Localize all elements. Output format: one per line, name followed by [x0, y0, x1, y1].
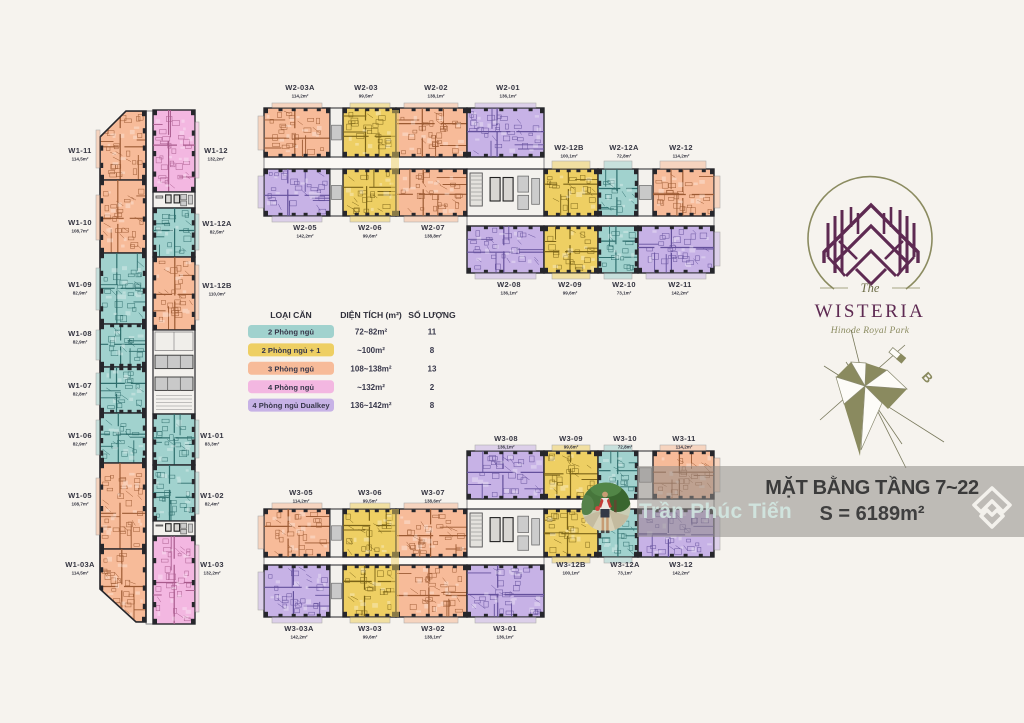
svg-text:138,1m²: 138,1m² — [427, 94, 445, 99]
svg-text:100,1m²: 100,1m² — [560, 154, 578, 159]
svg-text:142,2m²: 142,2m² — [672, 571, 690, 576]
svg-text:W2-12B: W2-12B — [554, 143, 584, 152]
svg-text:W1-11: W1-11 — [68, 146, 91, 155]
svg-text:LOẠI CĂN: LOẠI CĂN — [270, 310, 312, 320]
svg-text:114,2m²: 114,2m² — [293, 499, 310, 504]
svg-text:8: 8 — [430, 346, 435, 355]
svg-text:99,5m²: 99,5m² — [359, 94, 374, 99]
svg-text:82,8m²: 82,8m² — [73, 392, 88, 397]
svg-text:W2-03: W2-03 — [354, 83, 378, 92]
svg-text:73,1m²: 73,1m² — [617, 291, 632, 296]
svg-text:W1-12B: W1-12B — [202, 281, 232, 290]
svg-text:W1-10: W1-10 — [68, 218, 92, 227]
svg-text:W1-08: W1-08 — [68, 329, 92, 338]
svg-text:W3-12: W3-12 — [669, 560, 693, 569]
svg-text:W1-02: W1-02 — [200, 491, 224, 500]
svg-text:W3-09: W3-09 — [559, 434, 583, 443]
svg-text:99,6m²: 99,6m² — [363, 234, 378, 239]
svg-text:8: 8 — [430, 401, 435, 410]
svg-text:W3-08: W3-08 — [494, 434, 518, 443]
svg-text:W1-03A: W1-03A — [65, 560, 95, 569]
svg-text:110,0m²: 110,0m² — [209, 292, 226, 297]
svg-text:W2-03A: W2-03A — [285, 83, 315, 92]
svg-text:99,6m²: 99,6m² — [563, 291, 578, 296]
svg-text:W2-11: W2-11 — [668, 280, 691, 289]
svg-text:W1-03: W1-03 — [200, 560, 224, 569]
svg-text:W1-09: W1-09 — [68, 280, 92, 289]
svg-text:W1-12A: W1-12A — [202, 219, 232, 228]
svg-text:DIỆN TÍCH (m²): DIỆN TÍCH (m²) — [340, 309, 402, 320]
svg-text:108,7m²: 108,7m² — [71, 229, 89, 234]
svg-text:82,9m²: 82,9m² — [73, 291, 88, 296]
svg-text:W1-01: W1-01 — [200, 431, 224, 440]
svg-text:W2-12A: W2-12A — [609, 143, 639, 152]
svg-text:114,2m²: 114,2m² — [292, 94, 309, 99]
svg-text:82,9m²: 82,9m² — [73, 442, 88, 447]
svg-text:W3-06: W3-06 — [358, 488, 382, 497]
svg-text:MẶT BẰNG TẦNG 7~22: MẶT BẰNG TẦNG 7~22 — [765, 475, 979, 499]
svg-text:114,2m²: 114,2m² — [673, 154, 690, 159]
svg-text:3 Phòng ngủ: 3 Phòng ngủ — [268, 364, 314, 373]
svg-text:W3-07: W3-07 — [421, 488, 445, 497]
svg-text:W2-12: W2-12 — [669, 143, 693, 152]
svg-text:W2-01: W2-01 — [496, 83, 520, 92]
svg-text:W2-08: W2-08 — [497, 280, 521, 289]
svg-text:2 Phòng ngủ: 2 Phòng ngủ — [268, 328, 314, 337]
svg-text:WISTERIA: WISTERIA — [815, 301, 926, 322]
svg-text:W2-10: W2-10 — [612, 280, 636, 289]
svg-text:142,2m²: 142,2m² — [296, 234, 314, 239]
svg-text:W3-03: W3-03 — [358, 624, 382, 633]
svg-text:The: The — [861, 281, 880, 295]
svg-text:W3-01: W3-01 — [493, 624, 517, 633]
svg-text:138,6m²: 138,6m² — [424, 499, 442, 504]
svg-text:2: 2 — [430, 383, 435, 392]
svg-text:W3-02: W3-02 — [421, 624, 445, 633]
svg-text:82,9m²: 82,9m² — [73, 340, 88, 345]
svg-text:82,5m²: 82,5m² — [210, 230, 225, 235]
svg-text:72,8m²: 72,8m² — [617, 154, 632, 159]
svg-text:72~82m²: 72~82m² — [355, 328, 388, 337]
svg-text:W3-03A: W3-03A — [284, 624, 314, 633]
svg-text:136~142m²: 136~142m² — [350, 401, 391, 410]
svg-text:132,2m²: 132,2m² — [207, 157, 225, 162]
svg-text:114,5m²: 114,5m² — [72, 157, 89, 162]
svg-text:136,1m²: 136,1m² — [499, 94, 517, 99]
svg-text:W3-12B: W3-12B — [556, 560, 586, 569]
svg-text:W3-05: W3-05 — [289, 488, 313, 497]
svg-text:99,6m²: 99,6m² — [363, 635, 378, 640]
svg-text:W2-06: W2-06 — [358, 223, 382, 232]
svg-text:11: 11 — [428, 328, 437, 337]
svg-text:4 Phòng ngủ Dualkey: 4 Phòng ngủ Dualkey — [252, 401, 330, 410]
svg-text:108~138m²: 108~138m² — [350, 364, 391, 373]
svg-text:W1-07: W1-07 — [68, 381, 92, 390]
svg-text:2 Phòng ngủ + 1: 2 Phòng ngủ + 1 — [262, 346, 322, 355]
svg-text:138,1m²: 138,1m² — [424, 635, 442, 640]
svg-text:82,4m²: 82,4m² — [205, 502, 220, 507]
svg-text:W2-09: W2-09 — [558, 280, 582, 289]
svg-text:W3-10: W3-10 — [613, 434, 637, 443]
svg-text:138,8m²: 138,8m² — [424, 234, 442, 239]
svg-text:W1-05: W1-05 — [68, 491, 92, 500]
svg-text:99,5m²: 99,5m² — [363, 499, 378, 504]
svg-text:W3-11: W3-11 — [672, 434, 695, 443]
svg-text:~132m²: ~132m² — [357, 383, 385, 392]
svg-text:W2-07: W2-07 — [421, 223, 445, 232]
svg-text:73,1m²: 73,1m² — [618, 571, 633, 576]
svg-text:W2-05: W2-05 — [293, 223, 317, 232]
svg-text:~100m²: ~100m² — [357, 346, 385, 355]
svg-text:72,8m²: 72,8m² — [618, 445, 633, 450]
svg-text:114,5m²: 114,5m² — [72, 571, 89, 576]
svg-text:SỐ LƯỢNG: SỐ LƯỢNG — [408, 309, 456, 320]
svg-text:W1-12: W1-12 — [204, 146, 228, 155]
svg-text:136,1m²: 136,1m² — [497, 445, 515, 450]
svg-text:99,6m²: 99,6m² — [564, 445, 579, 450]
svg-text:136,1m²: 136,1m² — [500, 291, 518, 296]
svg-text:100,1m²: 100,1m² — [562, 571, 580, 576]
svg-text:136,1m²: 136,1m² — [496, 635, 514, 640]
svg-text:Hinode Royal Park: Hinode Royal Park — [830, 326, 910, 336]
svg-text:4 Phòng ngủ: 4 Phòng ngủ — [268, 383, 314, 392]
svg-text:W3-12A: W3-12A — [610, 560, 640, 569]
svg-text:142,2m²: 142,2m² — [671, 291, 689, 296]
svg-text:W2-02: W2-02 — [424, 83, 448, 92]
svg-text:108,7m²: 108,7m² — [71, 502, 89, 507]
svg-text:114,2m²: 114,2m² — [676, 445, 693, 450]
svg-text:142,2m²: 142,2m² — [290, 635, 308, 640]
svg-text:13: 13 — [428, 364, 437, 373]
svg-text:Trần Phúc Tiến: Trần Phúc Tiến — [639, 500, 792, 523]
svg-text:W1-06: W1-06 — [68, 431, 92, 440]
svg-text:S = 6189m²: S = 6189m² — [819, 503, 924, 525]
svg-text:83,3m²: 83,3m² — [205, 442, 220, 447]
svg-text:132,2m²: 132,2m² — [203, 571, 221, 576]
